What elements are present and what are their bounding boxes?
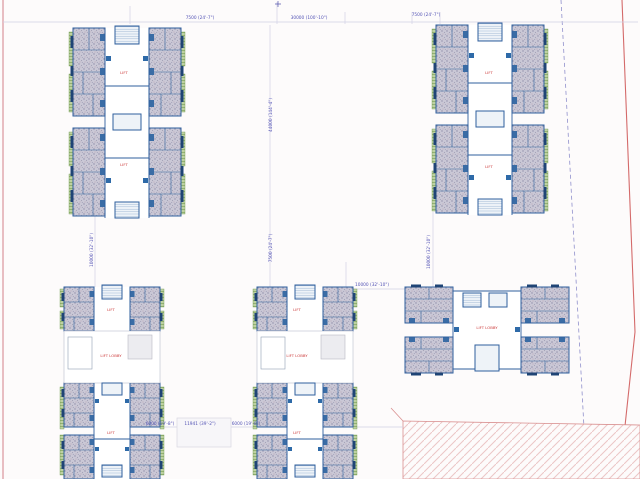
unit-label: LIFT LOBBY	[100, 353, 122, 358]
unit-label: LIFT	[293, 430, 301, 435]
unit-label: LIFT	[120, 70, 128, 75]
building-block-3	[405, 285, 569, 376]
building-block-1	[60, 285, 164, 479]
site-boundary-right	[622, 0, 635, 426]
dimension-label: 30000 (100'-10")	[291, 15, 328, 21]
excluded-area-hatch	[403, 421, 640, 479]
boundary-corner-segment	[391, 408, 403, 421]
dimension-label: 6000 (19'-8")	[232, 421, 261, 427]
site-plan-drawing: LIFT LIFT LIFT LIFT LIFT LIFT LOBBY LIFT…	[0, 0, 640, 479]
dimension-label: 10000 (32'-10")	[355, 282, 389, 288]
dimension-label: 7500 (24'-7")	[268, 233, 274, 262]
dimension-label: 10000 (32'-10")	[89, 233, 95, 267]
unit-label: LIFT	[120, 162, 128, 167]
dimension-label: 6000 (19'-8")	[146, 421, 175, 427]
unit-label: LIFT	[107, 430, 115, 435]
unit-label: LIFT	[485, 164, 493, 169]
survey-cross-marker	[275, 1, 281, 7]
dimension-label: 11941 (39'-2")	[184, 421, 216, 427]
site-plan-canvas: LIFT LIFT LIFT LIFT LIFT LIFT LOBBY LIFT…	[0, 0, 640, 479]
building-block-2	[253, 285, 357, 479]
building-tower-1	[69, 26, 185, 218]
dimension-label: 10000 (32'-10")	[426, 235, 432, 269]
unit-label: LIFT	[107, 307, 115, 312]
unit-label: LIFT LOBBY	[286, 353, 308, 358]
unit-label: LIFT	[485, 70, 493, 75]
dimension-label: 44000 (144'-4")	[268, 98, 274, 132]
building-tower-2	[432, 23, 548, 215]
unit-label: LIFT	[293, 307, 301, 312]
unit-label: LIFT LOBBY	[476, 325, 498, 330]
dimension-label: 7500 (24'-7")	[186, 15, 215, 21]
dimension-label: 7500 (24'-7")	[412, 12, 441, 18]
